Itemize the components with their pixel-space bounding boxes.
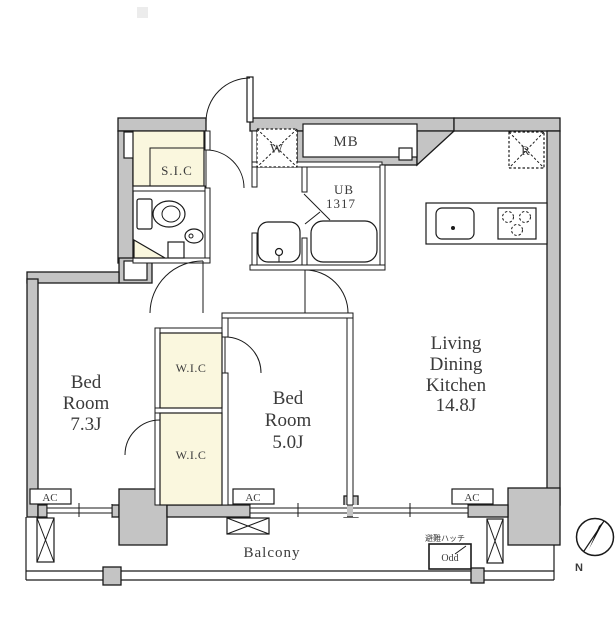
wall-wic-divider: [155, 408, 228, 413]
washer-label: W: [270, 142, 284, 157]
wall-step-diagonal: [417, 131, 454, 165]
wall-hall-wash-upper: [252, 131, 257, 187]
wall-bedroom1-top: [27, 272, 119, 283]
wall-wic-right-lower: [222, 373, 228, 505]
wall-wash-ub-upper: [302, 167, 307, 192]
bedroom1-label-line1: Bed: [71, 372, 102, 393]
wall-bottom-seg2: [112, 505, 119, 517]
wall-toilet-bottom: [133, 258, 210, 263]
wall-sic-toilet: [133, 186, 205, 191]
bedroom1-window: [47, 503, 112, 517]
outer-walls: [27, 118, 560, 545]
pillar-bottom-right: [508, 488, 560, 545]
ldk-label-line2: Dining: [430, 354, 483, 375]
hand-basin-icon: [185, 229, 203, 243]
compass-icon: [577, 519, 614, 556]
faint-square: [137, 7, 148, 18]
wall-bottom-seg4: [468, 505, 508, 517]
ldk-label-line1: Living: [431, 333, 482, 354]
ldk-window: [353, 503, 468, 517]
wall-bedroom2-top: [222, 313, 353, 318]
ldk-door-arc: [305, 270, 348, 313]
balcony-items: [37, 518, 503, 569]
floorplan-drawing: Bed Room 7.3J Bed Room 5.0J Living Dinin…: [0, 0, 615, 644]
wall-niche-corner: [124, 261, 147, 280]
entrance-door-leaf: [247, 77, 253, 122]
bedroom1-label-line2: Room: [63, 393, 110, 414]
windows: [47, 503, 468, 517]
balcony-label: Balcony: [244, 545, 301, 561]
wall-bottom-seg1: [38, 505, 47, 517]
stove-icon: [498, 208, 536, 239]
toilet-counter-box: [168, 242, 184, 258]
ub-label-line1: UB: [334, 182, 354, 197]
ac-label-ldk: AC: [464, 492, 479, 504]
wall-washblock-bottom: [250, 265, 385, 270]
sink-drain: [451, 226, 455, 230]
wall-wic-left: [155, 328, 160, 505]
wall-wash-ub-lower: [302, 238, 307, 265]
bedroom2-label-line1: Bed: [273, 388, 304, 409]
wall-wic-top: [155, 328, 228, 333]
wic-upper-label: W.I.C: [176, 361, 207, 375]
wall-top-right-band: [454, 118, 560, 131]
fridge-label: R: [521, 143, 531, 158]
kitchen-sink-icon: [436, 208, 474, 239]
compass-north-label: N: [575, 562, 583, 574]
bedroom2-window: [250, 503, 347, 517]
meter-box-label: MB: [333, 134, 358, 150]
wall-hall-sic-upper: [205, 131, 210, 150]
bedroom2-label-line3: 5.0J: [272, 432, 303, 453]
ac-marks: [30, 489, 493, 504]
sic-door-arc: [206, 150, 244, 188]
sic-label: S.I.C: [161, 163, 193, 178]
toilet-corner-triangle: [134, 240, 165, 258]
wic-upper-door-arc: [225, 337, 261, 373]
wall-hall-toilet: [205, 188, 210, 263]
evacuation-hatch-sub: Odd: [441, 553, 458, 564]
ub-label-line2: 1317: [326, 196, 356, 211]
wic-lower-label: W.I.C: [176, 448, 207, 462]
floorplan-page: Bed Room 7.3J Bed Room 5.0J Living Dinin…: [0, 0, 615, 644]
bedroom1-door-arc: [150, 261, 203, 313]
washroom-fixtures: [258, 222, 300, 262]
wall-niche-small: [399, 148, 412, 160]
ldk-label-line3: Kitchen: [426, 375, 487, 396]
wall-right: [547, 131, 560, 505]
entrance-door-arc: [206, 78, 250, 122]
ac-label-bedroom2: AC: [245, 492, 260, 504]
wall-hall-wash-lower: [252, 233, 257, 270]
wall-bedroom2-right: [347, 318, 353, 505]
toilet-tank-icon: [137, 199, 152, 229]
ac-label-bedroom1: AC: [42, 492, 57, 504]
kitchen-fixtures: [426, 203, 547, 244]
balcony-post-left: [103, 567, 121, 585]
wall-ub-right: [380, 165, 385, 270]
wall-left: [27, 279, 38, 517]
wall-bottom-seg3: [167, 505, 250, 517]
bedroom1-label-line3: 7.3J: [70, 414, 101, 435]
bedroom2-label-line2: Room: [265, 410, 312, 431]
evacuation-hatch-label: 避難ハッチ: [425, 533, 465, 543]
ldk-label-line4: 14.8J: [436, 395, 477, 416]
balcony-post-right: [471, 568, 484, 583]
washbasin-faucet: [276, 249, 283, 256]
bathtub-icon: [311, 221, 377, 262]
wall-wic-right-upper: [222, 318, 228, 337]
wall-top-left-band: [118, 118, 206, 131]
